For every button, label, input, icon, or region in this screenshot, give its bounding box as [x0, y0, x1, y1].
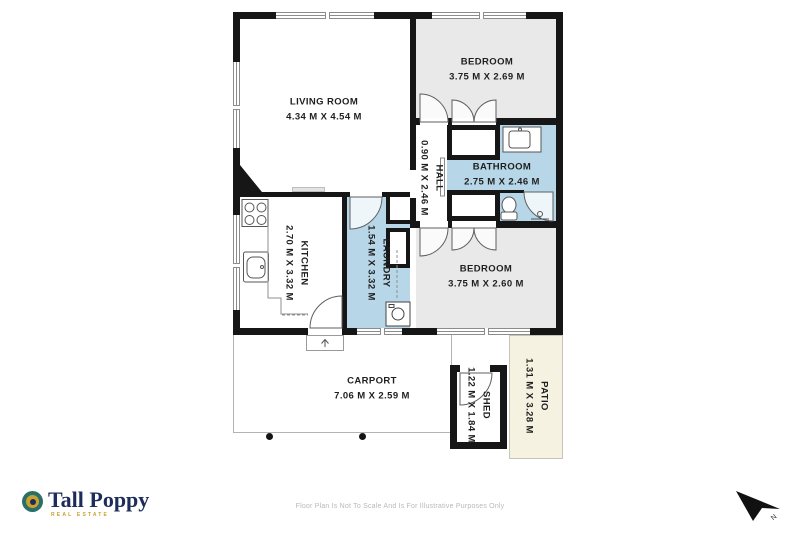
room-label-laundry: LAUNDRY 1.54 M X 3.32 M [363, 225, 392, 301]
laundry-nook [386, 197, 410, 224]
wall [500, 190, 524, 193]
wall [410, 221, 420, 228]
disclaimer-text: Floor Plan Is Not To Scale And Is For Il… [0, 503, 800, 510]
wall [240, 192, 347, 197]
room-label-kitchen: KITCHEN 2.70 M X 3.32 M [281, 225, 310, 301]
window [276, 12, 374, 19]
wall [556, 12, 563, 335]
room-name: HALL [431, 140, 446, 216]
door-arc [310, 296, 342, 328]
carport-post [359, 433, 366, 440]
room-dims: 1.31 M X 3.28 M [521, 358, 536, 434]
room-name: BEDROOM [448, 262, 524, 277]
room-label-hall: HALL 0.90 M X 2.46 M [416, 140, 445, 216]
wall [496, 118, 563, 125]
wall [342, 328, 357, 335]
window [432, 12, 526, 19]
north-label: N [770, 513, 778, 522]
bulkhead [292, 187, 325, 192]
sink-bowl [247, 257, 265, 278]
wall [374, 12, 432, 19]
room-label-bedroom-2: BEDROOM 3.75 M X 2.60 M [448, 262, 524, 291]
room-name: KITCHEN [296, 225, 311, 301]
room-dims: 4.34 M X 4.54 M [286, 110, 362, 125]
sink-tap [261, 266, 264, 269]
room-dims: 7.06 M X 2.59 M [334, 389, 410, 404]
room-dims: 3.75 M X 2.69 M [449, 70, 525, 85]
wall [233, 12, 240, 62]
room-name: LIVING ROOM [286, 95, 362, 110]
room-name: LAUNDRY [378, 225, 393, 301]
room-dims: 2.75 M X 2.46 M [464, 175, 540, 190]
wall [448, 118, 452, 125]
room-dims: 2.70 M X 3.32 M [281, 225, 296, 301]
window [233, 215, 240, 310]
room-name: PATIO [536, 358, 551, 434]
window [357, 328, 402, 335]
window [233, 62, 240, 148]
room-dims: 1.22 M X 1.84 M [463, 367, 478, 443]
wall [233, 328, 308, 335]
room-label-living: LIVING ROOM 4.34 M X 4.54 M [286, 95, 362, 124]
stove-burner [257, 203, 266, 212]
room-name: BEDROOM [449, 55, 525, 70]
wall [410, 118, 420, 125]
north-arrow-icon: N [725, 480, 795, 528]
entry-step [306, 335, 344, 351]
brand-tagline: REAL ESTATE [51, 512, 109, 518]
sink-icon [244, 252, 269, 282]
stove-burner [257, 216, 266, 225]
wall [402, 328, 437, 335]
stove-burner [245, 203, 254, 212]
room-label-shed: SHED 1.22 M X 1.84 M [463, 367, 492, 443]
stove-burner [245, 216, 254, 225]
room-label-bathroom: BATHROOM 2.75 M X 2.46 M [464, 160, 540, 189]
wall [410, 12, 416, 170]
room-dims: 3.75 M X 2.60 M [448, 277, 524, 292]
room-name: SHED [478, 367, 493, 443]
closet [447, 190, 500, 221]
wall [530, 328, 563, 335]
window [437, 328, 530, 335]
wall [347, 192, 350, 197]
room-label-patio: PATIO 1.31 M X 3.28 M [521, 358, 550, 434]
wall [233, 148, 240, 215]
wall [342, 192, 347, 328]
wall [448, 221, 452, 228]
room-dims: 1.54 M X 3.32 M [363, 225, 378, 301]
room-label-bedroom-1: BEDROOM 3.75 M X 2.69 M [449, 55, 525, 84]
carport-post [266, 433, 273, 440]
room-label-carport: CARPORT 7.06 M X 2.59 M [334, 374, 410, 403]
floor-plan-page: LIVING ROOM 4.34 M X 4.54 M BEDROOM 3.75… [0, 0, 800, 533]
room-dims: 0.90 M X 2.46 M [416, 140, 431, 216]
wall [496, 221, 563, 228]
closet [447, 125, 500, 160]
room-name: CARPORT [334, 374, 410, 389]
room-name: BATHROOM [464, 160, 540, 175]
stove-icon [242, 200, 268, 227]
